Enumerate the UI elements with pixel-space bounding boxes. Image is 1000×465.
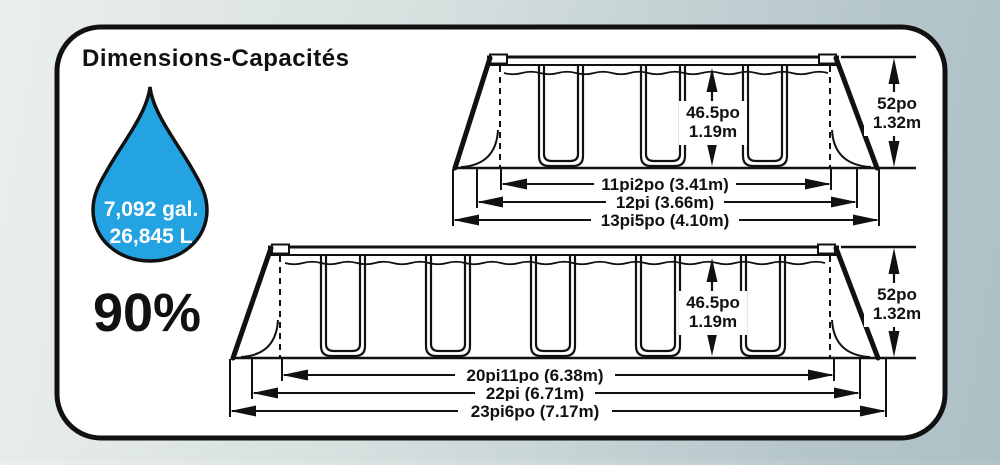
pool-small-width-mid-label: 12pi (3.66m) [616, 193, 714, 212]
pool-large-width-mid-label: 22pi (6.71m) [486, 384, 584, 403]
pool-small-water-height-po: 46.5po [686, 103, 740, 122]
page-title: Dimensions-Capacités [82, 45, 349, 72]
pool-large-water-height-po: 46.5po [686, 293, 740, 312]
pool-small-width-inner-label: 11pi2po (3.41m) [601, 175, 729, 194]
dimensions-capacities-diagram: Dimensions-Capacités 7,092 gal. 26,845 L… [0, 0, 1000, 460]
capacity-gallons: 7,092 gal. [104, 198, 199, 221]
pool-small-frame-height-m: 1.32m [873, 113, 921, 132]
pool-large-width-inner-label: 20pi11po (6.38m) [466, 366, 603, 385]
pool-large-frame-height-m: 1.32m [873, 304, 921, 323]
pool-large-water-height-m: 1.19m [689, 312, 737, 331]
rail-cap [490, 55, 507, 64]
pool-small-water-height-m: 1.19m [689, 122, 737, 141]
rail-cap [272, 245, 289, 254]
rail-cap [819, 55, 836, 64]
pool-small-frame-height-po: 52po [877, 94, 917, 113]
rail-cap [818, 245, 835, 254]
pool-large-width-outer-label: 23pi6po (7.17m) [471, 402, 600, 421]
pool-large-frame-height-po: 52po [877, 285, 917, 304]
capacity-liters: 26,845 L [110, 225, 193, 248]
pool-small-width-outer-label: 13pi5po (4.10m) [601, 211, 730, 230]
fill-percentage: 90% [93, 283, 201, 343]
